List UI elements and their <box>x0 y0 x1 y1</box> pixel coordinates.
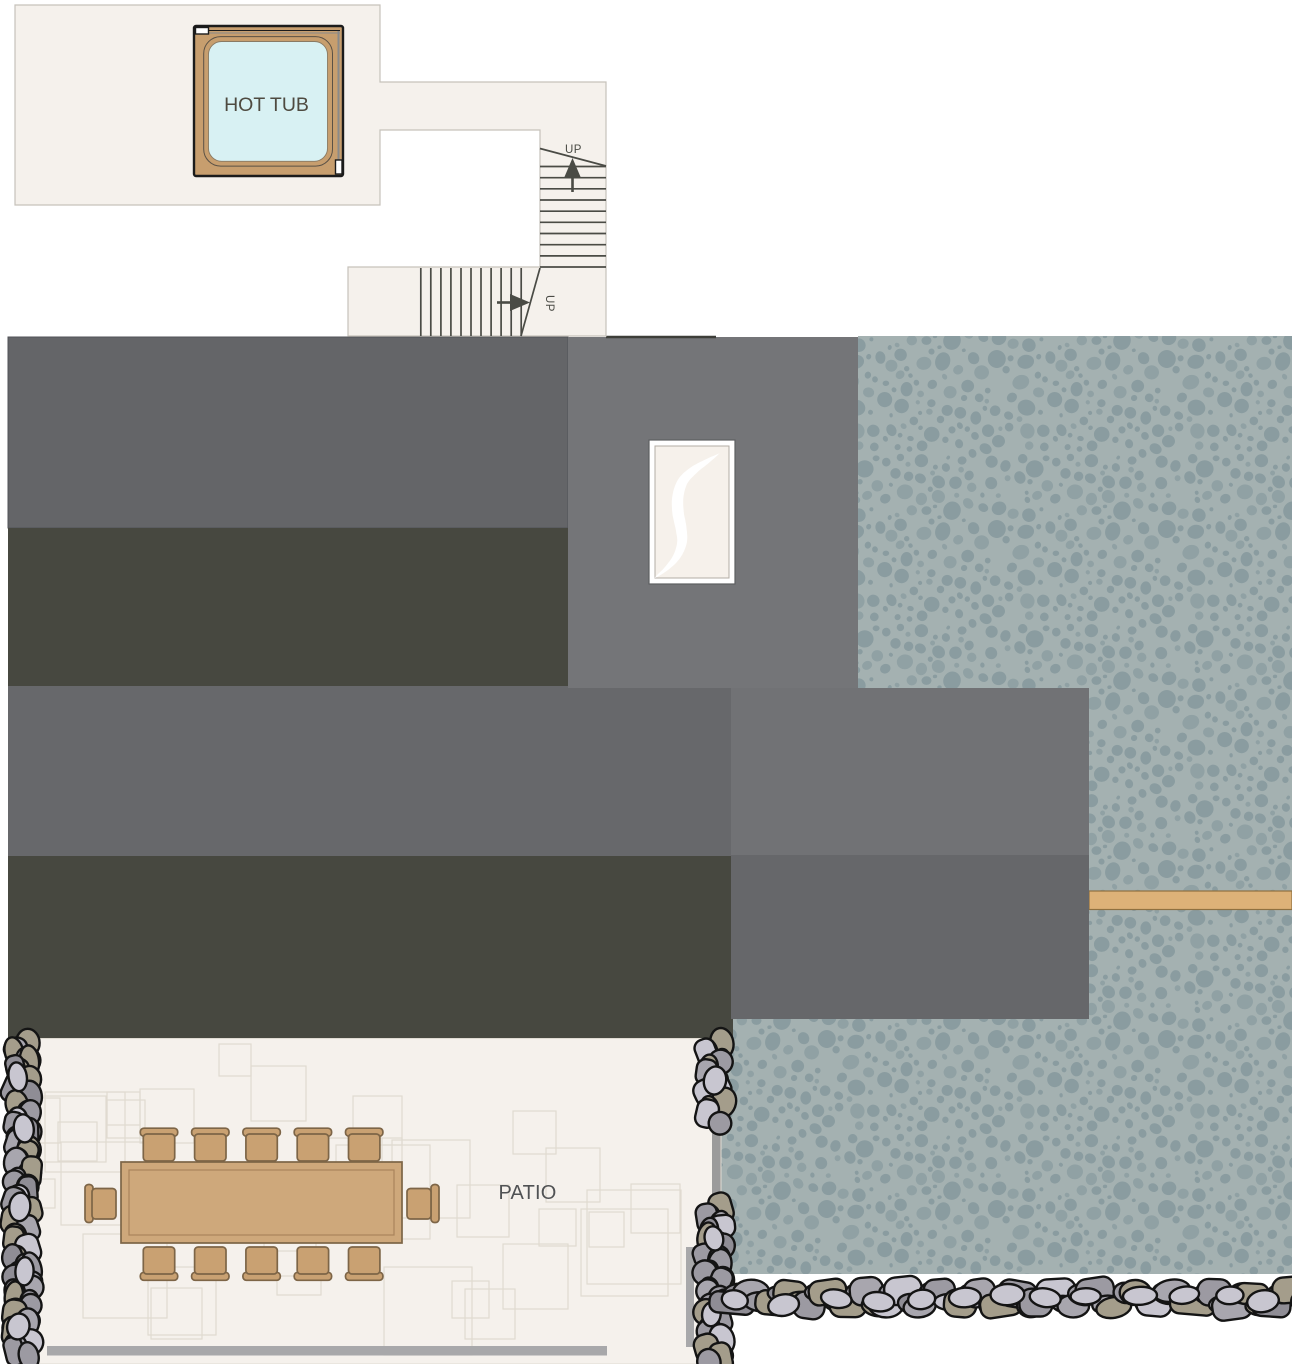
svg-text:UP: UP <box>543 295 555 312</box>
svg-text:PATIO: PATIO <box>498 1182 556 1204</box>
svg-text:HOT TUB: HOT TUB <box>224 94 309 116</box>
svg-text:UP: UP <box>565 144 582 156</box>
